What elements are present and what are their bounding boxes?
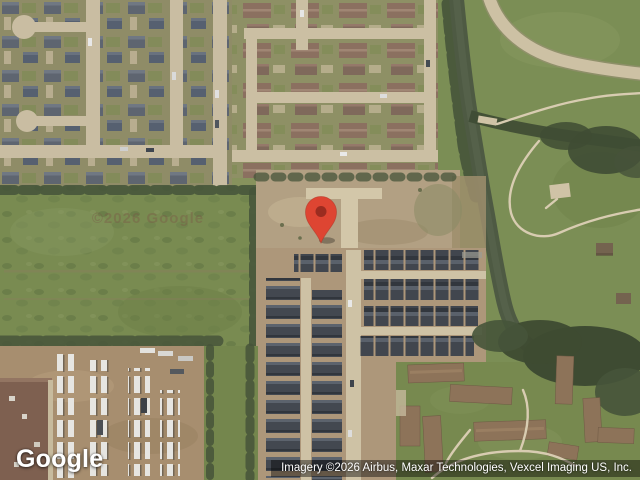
map-canvas[interactable]: ©2026 Google [0,0,640,480]
townhome-row [364,279,480,300]
townhome-column [266,278,300,478]
imagery-attribution: Imagery ©2026 Airbus, Maxar Technologies… [271,460,640,477]
townhome-row [364,306,478,326]
open-field: ©2026 Google [0,186,262,346]
satellite-imagery: ©2026 Google [0,0,640,480]
trailer-rows [128,368,150,476]
trail-pad [549,183,571,199]
google-logo[interactable]: Google [16,445,103,474]
imagery-watermark: ©2026 Google [92,210,204,227]
townhome-complex-north [232,0,454,178]
neighborhood-nw [0,0,232,186]
townhome-column [312,290,342,480]
trailer-rows [160,390,180,476]
pavilion [616,293,631,304]
townhome-row [294,254,342,272]
pin-hole [316,206,327,217]
cleared-lot [256,170,486,253]
townhome-row [360,336,474,356]
